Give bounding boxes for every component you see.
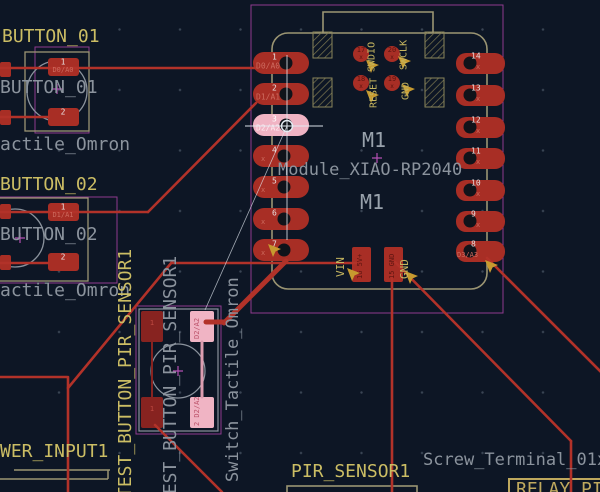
trace-gnd-diag[interactable] [395, 262, 571, 441]
pir-sensor-ref[interactable]: PIR_SENSOR1 [291, 461, 410, 482]
pad-m1-19-label: 19 [388, 75, 396, 83]
pad-m1-9[interactable] [456, 211, 505, 232]
module-ref-top[interactable]: M1 [362, 128, 386, 152]
pad-button01-2-label: 2 [61, 108, 66, 117]
pad-stub[interactable] [0, 62, 11, 77]
pad-button02-1-label: D1/A1 [52, 211, 73, 219]
keepout-hatch [313, 32, 332, 58]
net-label-swdio[interactable]: SWDIO [366, 42, 377, 72]
pad-m1-14-label: 14 [471, 52, 481, 61]
pad-m1-6-label: x [261, 218, 265, 226]
keepout-hatch [313, 78, 332, 107]
pad-m1-8-label: 8 [471, 240, 476, 249]
board-layer: 1D0/A02D1/A13D2/A24x5x6x7x14x13x12x11x10… [0, 0, 600, 492]
pad-m1-15-gnd-label: 15 GND [388, 254, 396, 279]
pir-sensor-outline [287, 486, 417, 492]
pad-m1-17-label: x [359, 54, 363, 61]
net-label-gnd-top[interactable]: GND [400, 82, 411, 100]
pad-button02-2-label: 2 [61, 253, 66, 262]
pad-m1-10-label: x [476, 190, 480, 198]
pad-m1-2-label: D1/A1 [256, 93, 280, 102]
pad-m1-13-label: 13 [471, 84, 481, 93]
net-label-reset[interactable]: RESET [368, 78, 379, 108]
pad-m1-18-label: 18 [357, 75, 365, 83]
pad-testbutton-1b-label: 1 [150, 405, 154, 413]
pad-m1-7-label: x [261, 249, 265, 257]
pad-m1-20-label: x [390, 54, 394, 61]
test-button-ref-yellow[interactable]: TEST_BUTTON_PIR_SENSOR1 [115, 249, 136, 492]
pad-m1-4-label: x [261, 155, 265, 163]
net-label-swclk[interactable]: SWCLK [398, 40, 409, 70]
module-ref[interactable]: M1 [360, 190, 384, 214]
pad-m1-20-label: 20 [388, 46, 396, 54]
pad-testbutton-2a-highlighted-label: D2/A2 [193, 318, 201, 339]
pad-m1-5-label: 5 [272, 177, 277, 186]
pad-m1-14-label: x [476, 63, 480, 71]
pad-m1-16-vin-label: 16 5V+ [356, 254, 364, 279]
pad-m1-7-hole [278, 244, 291, 257]
pad-m1-19-label: x [390, 83, 394, 90]
pad-m1-18-label: x [359, 83, 363, 90]
pad-m1-2-label: 2 [272, 84, 277, 93]
net-label-gnd-bottom[interactable]: GND [398, 259, 411, 279]
pad-m1-8-label: D3/A3 [457, 251, 478, 259]
test-button-ref-gray[interactable]: TEST_BUTTON_PIR_SENSOR1 [160, 256, 181, 492]
power-input-outline [0, 470, 110, 479]
pcb-editor-canvas[interactable]: 1D0/A02D1/A13D2/A24x5x6x7x14x13x12x11x10… [0, 0, 600, 492]
pad-m1-2-hole [280, 88, 293, 101]
screw-terminal-label[interactable]: Screw_Terminal_01x [423, 450, 600, 470]
button01-footprint[interactable]: actile_Omron [0, 134, 130, 155]
pad-m1-5-hole [278, 181, 291, 194]
keepout-hatch [425, 78, 444, 107]
pad-m1-12-label: 12 [471, 116, 481, 125]
pad-m1-3-highlighted-label: 3 [272, 115, 277, 124]
button01-value[interactable]: BUTTON_01 [0, 77, 98, 98]
pad-m1-11-label: 11 [471, 147, 481, 156]
trace-d3a3-diag[interactable] [487, 258, 600, 372]
pad-m1-6-label: 6 [272, 209, 277, 218]
net-label-vin[interactable]: VIN [334, 257, 347, 277]
pad-m1-5-label: x [261, 186, 265, 194]
button02-footprint[interactable]: actile_Omron [0, 280, 130, 301]
switch-footprint-name[interactable]: Switch_Tactile_Omron [223, 277, 243, 482]
keepout-hatch [425, 32, 444, 58]
power-input-ref[interactable]: WER_INPUT1 [0, 441, 108, 462]
pad-testbutton-2b-highlighted-label: 2 D2/A2 [193, 396, 201, 426]
pad-m1-1-label: D0/A0 [256, 62, 280, 71]
pad-m1-3-highlighted-label: D2/A2 [256, 124, 280, 133]
pad-m1-17-label: 17 [357, 46, 365, 54]
button02-ref[interactable]: BUTTON_02 [0, 174, 98, 195]
usb-connector-outline [323, 12, 433, 33]
pad-testbutton-1a-label: 1 [150, 319, 154, 327]
pad-m1-6-hole [278, 213, 291, 226]
button02-value[interactable]: BUTTON_02 [0, 224, 98, 245]
pad-m1-13-label: x [476, 95, 480, 103]
button01-ref[interactable]: BUTTON_01 [2, 26, 100, 47]
pad-m1-9-label: 9 [471, 210, 476, 219]
trace-d1a1-diag[interactable] [148, 103, 256, 212]
pad-m1-1-label: 1 [272, 53, 277, 62]
pad-button01-1-label: D0/A0 [52, 66, 73, 74]
module-footprint-name[interactable]: Module_XIAO-RP2040 [278, 160, 462, 180]
pad-m1-9-label: x [476, 221, 480, 229]
pad-m1-12-label: x [476, 127, 480, 135]
pad-m1-1-hole [280, 57, 293, 70]
pad-m1-10-label: 10 [471, 179, 481, 188]
pad-m1-11-label: x [476, 158, 480, 166]
relay-pin-label[interactable]: RELAY_PIN [516, 479, 600, 492]
